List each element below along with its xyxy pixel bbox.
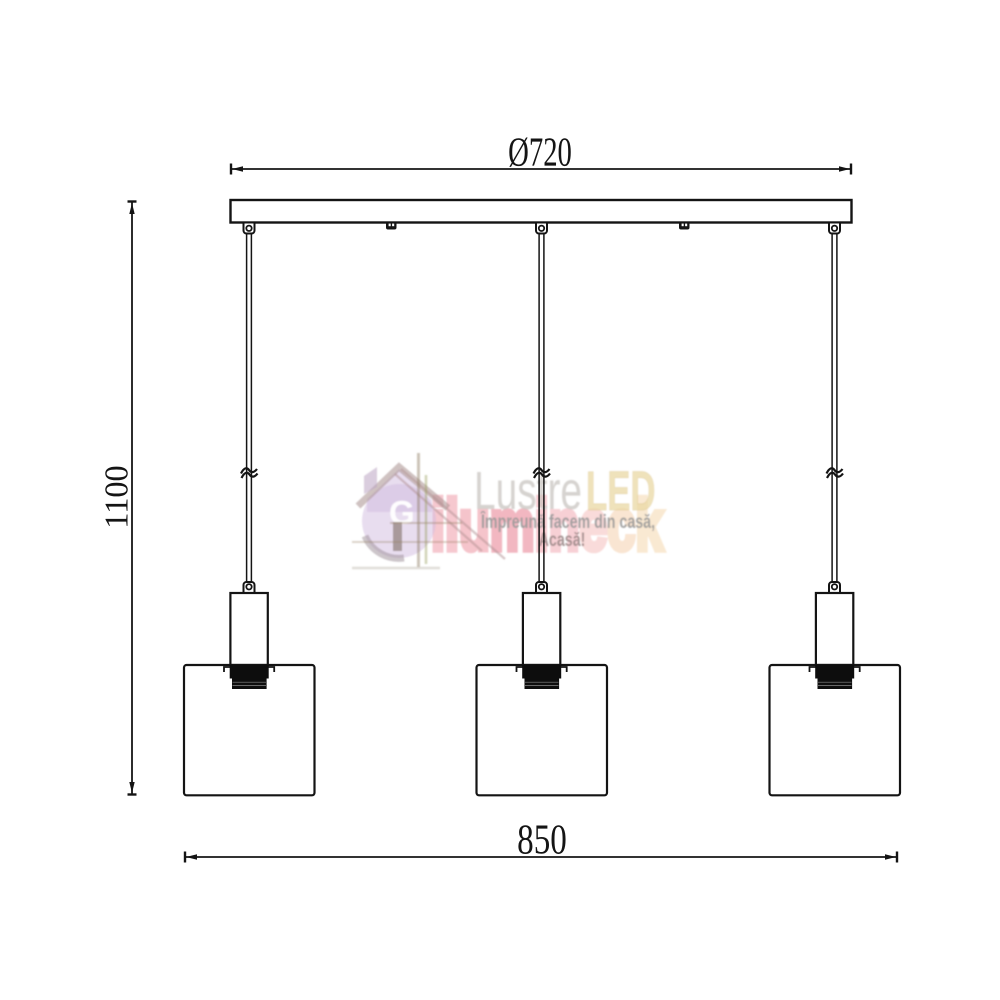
svg-text:1100: 1100 bbox=[98, 465, 136, 528]
svg-text:850: 850 bbox=[517, 817, 567, 864]
svg-text:Ø720: Ø720 bbox=[508, 128, 572, 174]
svg-text:Acasă!: Acasă! bbox=[539, 529, 586, 550]
